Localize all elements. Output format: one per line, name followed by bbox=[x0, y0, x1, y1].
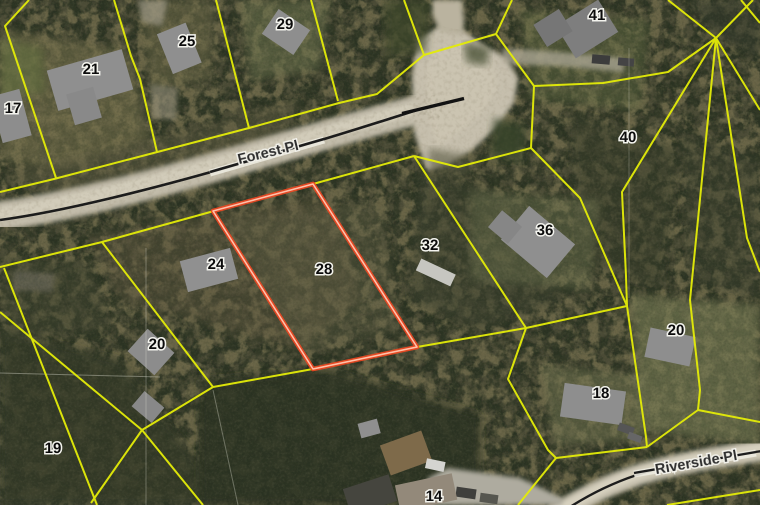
svg-text:17: 17 bbox=[5, 100, 22, 117]
svg-text:21: 21 bbox=[83, 61, 100, 78]
svg-text:24: 24 bbox=[208, 256, 225, 273]
svg-text:41: 41 bbox=[589, 7, 606, 24]
svg-text:40: 40 bbox=[620, 129, 637, 146]
svg-text:20: 20 bbox=[668, 322, 685, 339]
svg-text:29: 29 bbox=[277, 16, 294, 33]
svg-text:20: 20 bbox=[149, 336, 166, 353]
svg-text:14: 14 bbox=[426, 488, 443, 505]
svg-text:36: 36 bbox=[537, 222, 554, 239]
svg-text:25: 25 bbox=[179, 33, 196, 50]
svg-text:28: 28 bbox=[316, 261, 333, 278]
svg-text:18: 18 bbox=[593, 385, 610, 402]
svg-text:32: 32 bbox=[422, 237, 439, 254]
svg-text:19: 19 bbox=[45, 440, 62, 457]
